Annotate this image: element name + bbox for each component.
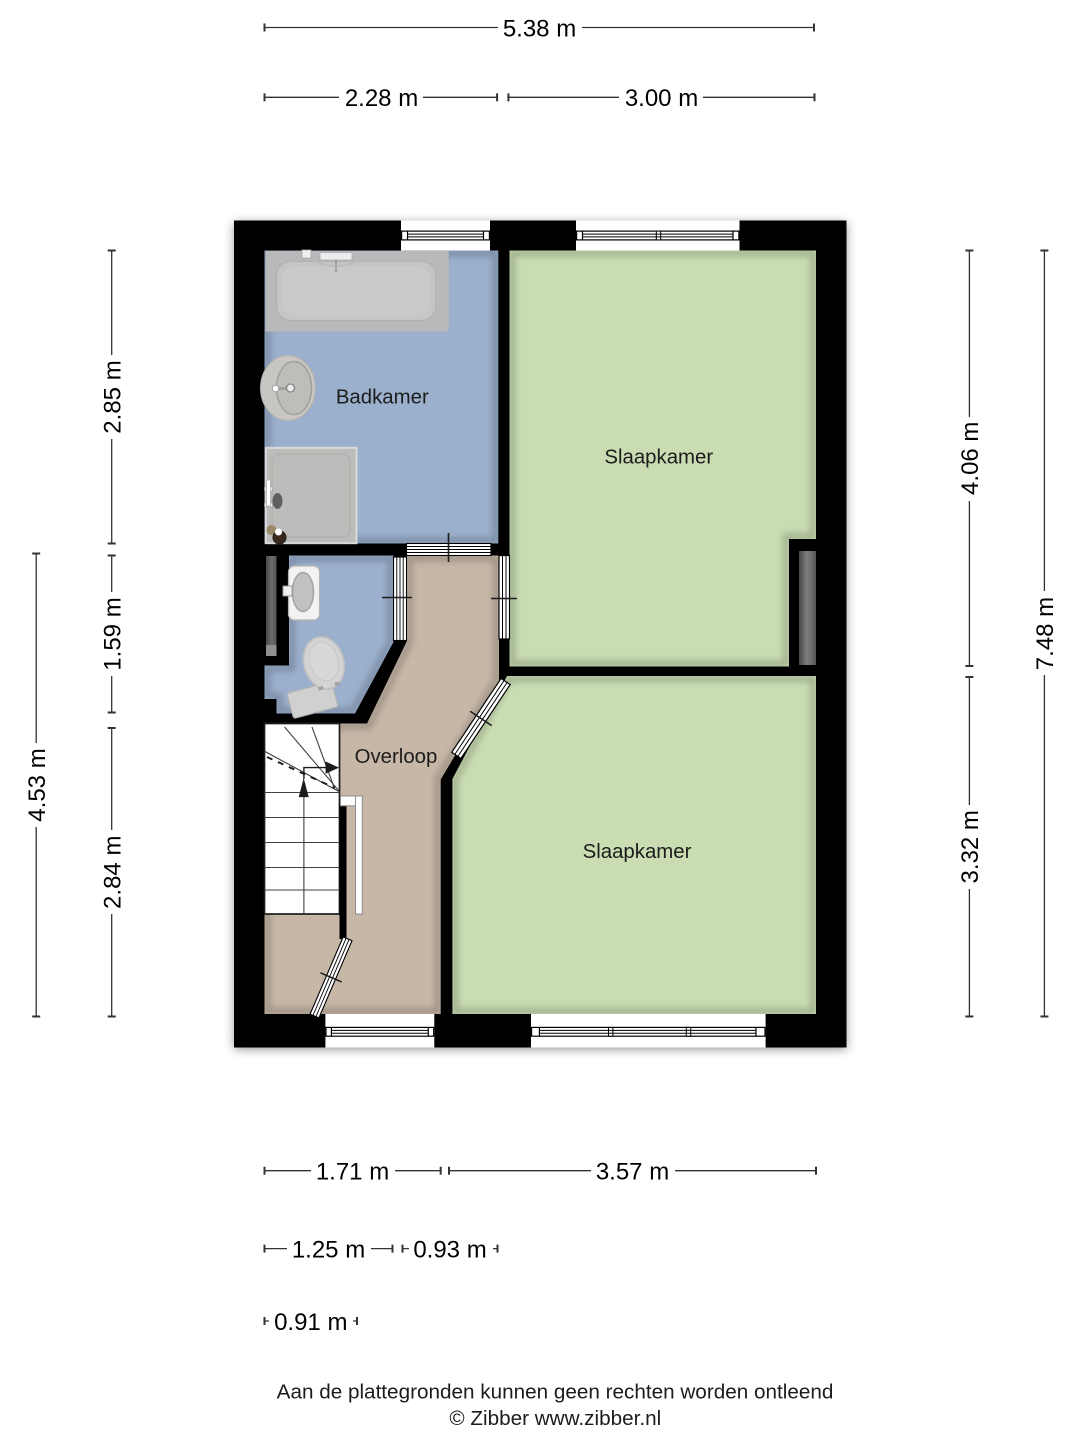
svg-text:Badkamer: Badkamer [336, 386, 429, 408]
svg-text:Slaapkamer: Slaapkamer [604, 447, 713, 469]
svg-text:1.71 m: 1.71 m [316, 1158, 389, 1185]
svg-text:7.48 m: 7.48 m [1032, 597, 1059, 670]
svg-text:3.00 m: 3.00 m [625, 85, 698, 112]
svg-text:Slaapkamer: Slaapkamer [583, 841, 692, 863]
svg-text:Overloop: Overloop [355, 746, 438, 768]
svg-text:Aan de plattegronden kunnen ge: Aan de plattegronden kunnen geen rechten… [277, 1380, 834, 1403]
svg-text:4.06 m: 4.06 m [957, 422, 984, 495]
svg-text:0.91 m: 0.91 m [274, 1309, 347, 1336]
svg-text:1.25 m: 1.25 m [292, 1236, 365, 1263]
svg-text:2.85 m: 2.85 m [100, 360, 127, 433]
svg-text:5.38 m: 5.38 m [503, 15, 576, 42]
svg-text:3.32 m: 3.32 m [957, 810, 984, 883]
svg-text:3.57 m: 3.57 m [596, 1158, 669, 1185]
svg-text:© Zibber www.zibber.nl: © Zibber www.zibber.nl [449, 1407, 661, 1430]
svg-text:2.84 m: 2.84 m [100, 836, 127, 909]
svg-text:4.53 m: 4.53 m [24, 748, 51, 821]
svg-text:0.93 m: 0.93 m [413, 1236, 486, 1263]
svg-text:2.28 m: 2.28 m [345, 85, 418, 112]
svg-text:1.59 m: 1.59 m [100, 597, 127, 670]
